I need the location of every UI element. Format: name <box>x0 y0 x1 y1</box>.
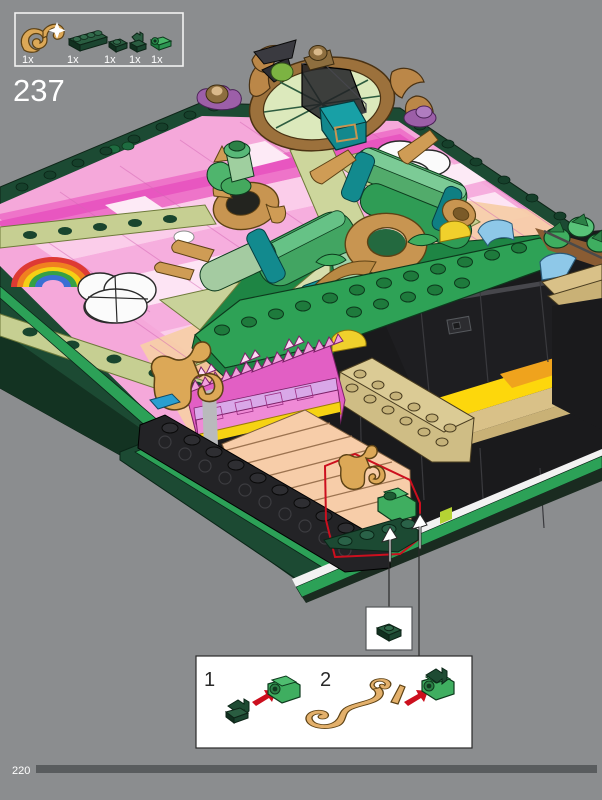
svg-text:1x: 1x <box>67 54 79 66</box>
svg-text:237: 237 <box>13 73 65 108</box>
svg-text:220: 220 <box>12 765 30 777</box>
svg-text:2: 2 <box>320 669 331 691</box>
svg-text:1x: 1x <box>104 54 116 66</box>
svg-text:1x: 1x <box>22 54 34 66</box>
svg-text:1: 1 <box>204 669 215 691</box>
svg-text:1x: 1x <box>129 54 141 66</box>
svg-text:1x: 1x <box>151 54 163 66</box>
